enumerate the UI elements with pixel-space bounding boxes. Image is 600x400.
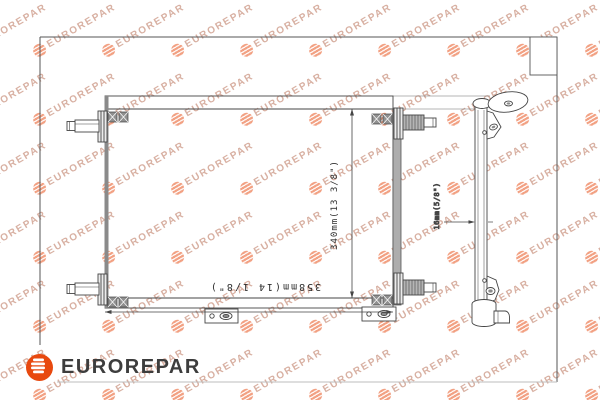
width-dimension: 358mm(14 1/8"): [105, 281, 393, 314]
core-outline: [105, 96, 393, 308]
top-mount-disc: [487, 89, 529, 114]
fitting-top-right: [394, 108, 436, 139]
brand-footer: EUROREPAR: [26, 354, 201, 381]
technical-drawing: 340mm(13 3/8") 358mm(14 1/8"): [0, 0, 600, 400]
bottom-foot: [472, 300, 510, 327]
side-profile-bar: [475, 105, 487, 303]
mounting-blocks: [108, 112, 392, 307]
eurorepar-logo-icon: [26, 354, 53, 381]
mounting-blocks-hatch: [108, 112, 392, 307]
fitting-top-left: [67, 111, 107, 142]
bottom-bracket-left: [205, 309, 238, 323]
brand-name: EUROREPAR: [61, 356, 201, 379]
fitting-bottom-left: [67, 274, 107, 305]
height-dimension: 340mm(13 3/8"): [330, 109, 354, 298]
fitting-bottom-right: [394, 273, 436, 304]
product-image: EUROREPAREUROREPAREUROREPAREUROREPAREURO…: [0, 0, 600, 400]
bottom-bracket-right: [362, 307, 396, 321]
height-dimension-label: 340mm(13 3/8"): [330, 160, 340, 250]
title-block-box: [530, 37, 557, 75]
width-dimension-label: 358mm(14 1/8"): [209, 281, 321, 292]
condenser-side-view: 16mm(5/8"): [433, 89, 529, 326]
depth-dimension-label: 16mm(5/8"): [433, 182, 441, 229]
